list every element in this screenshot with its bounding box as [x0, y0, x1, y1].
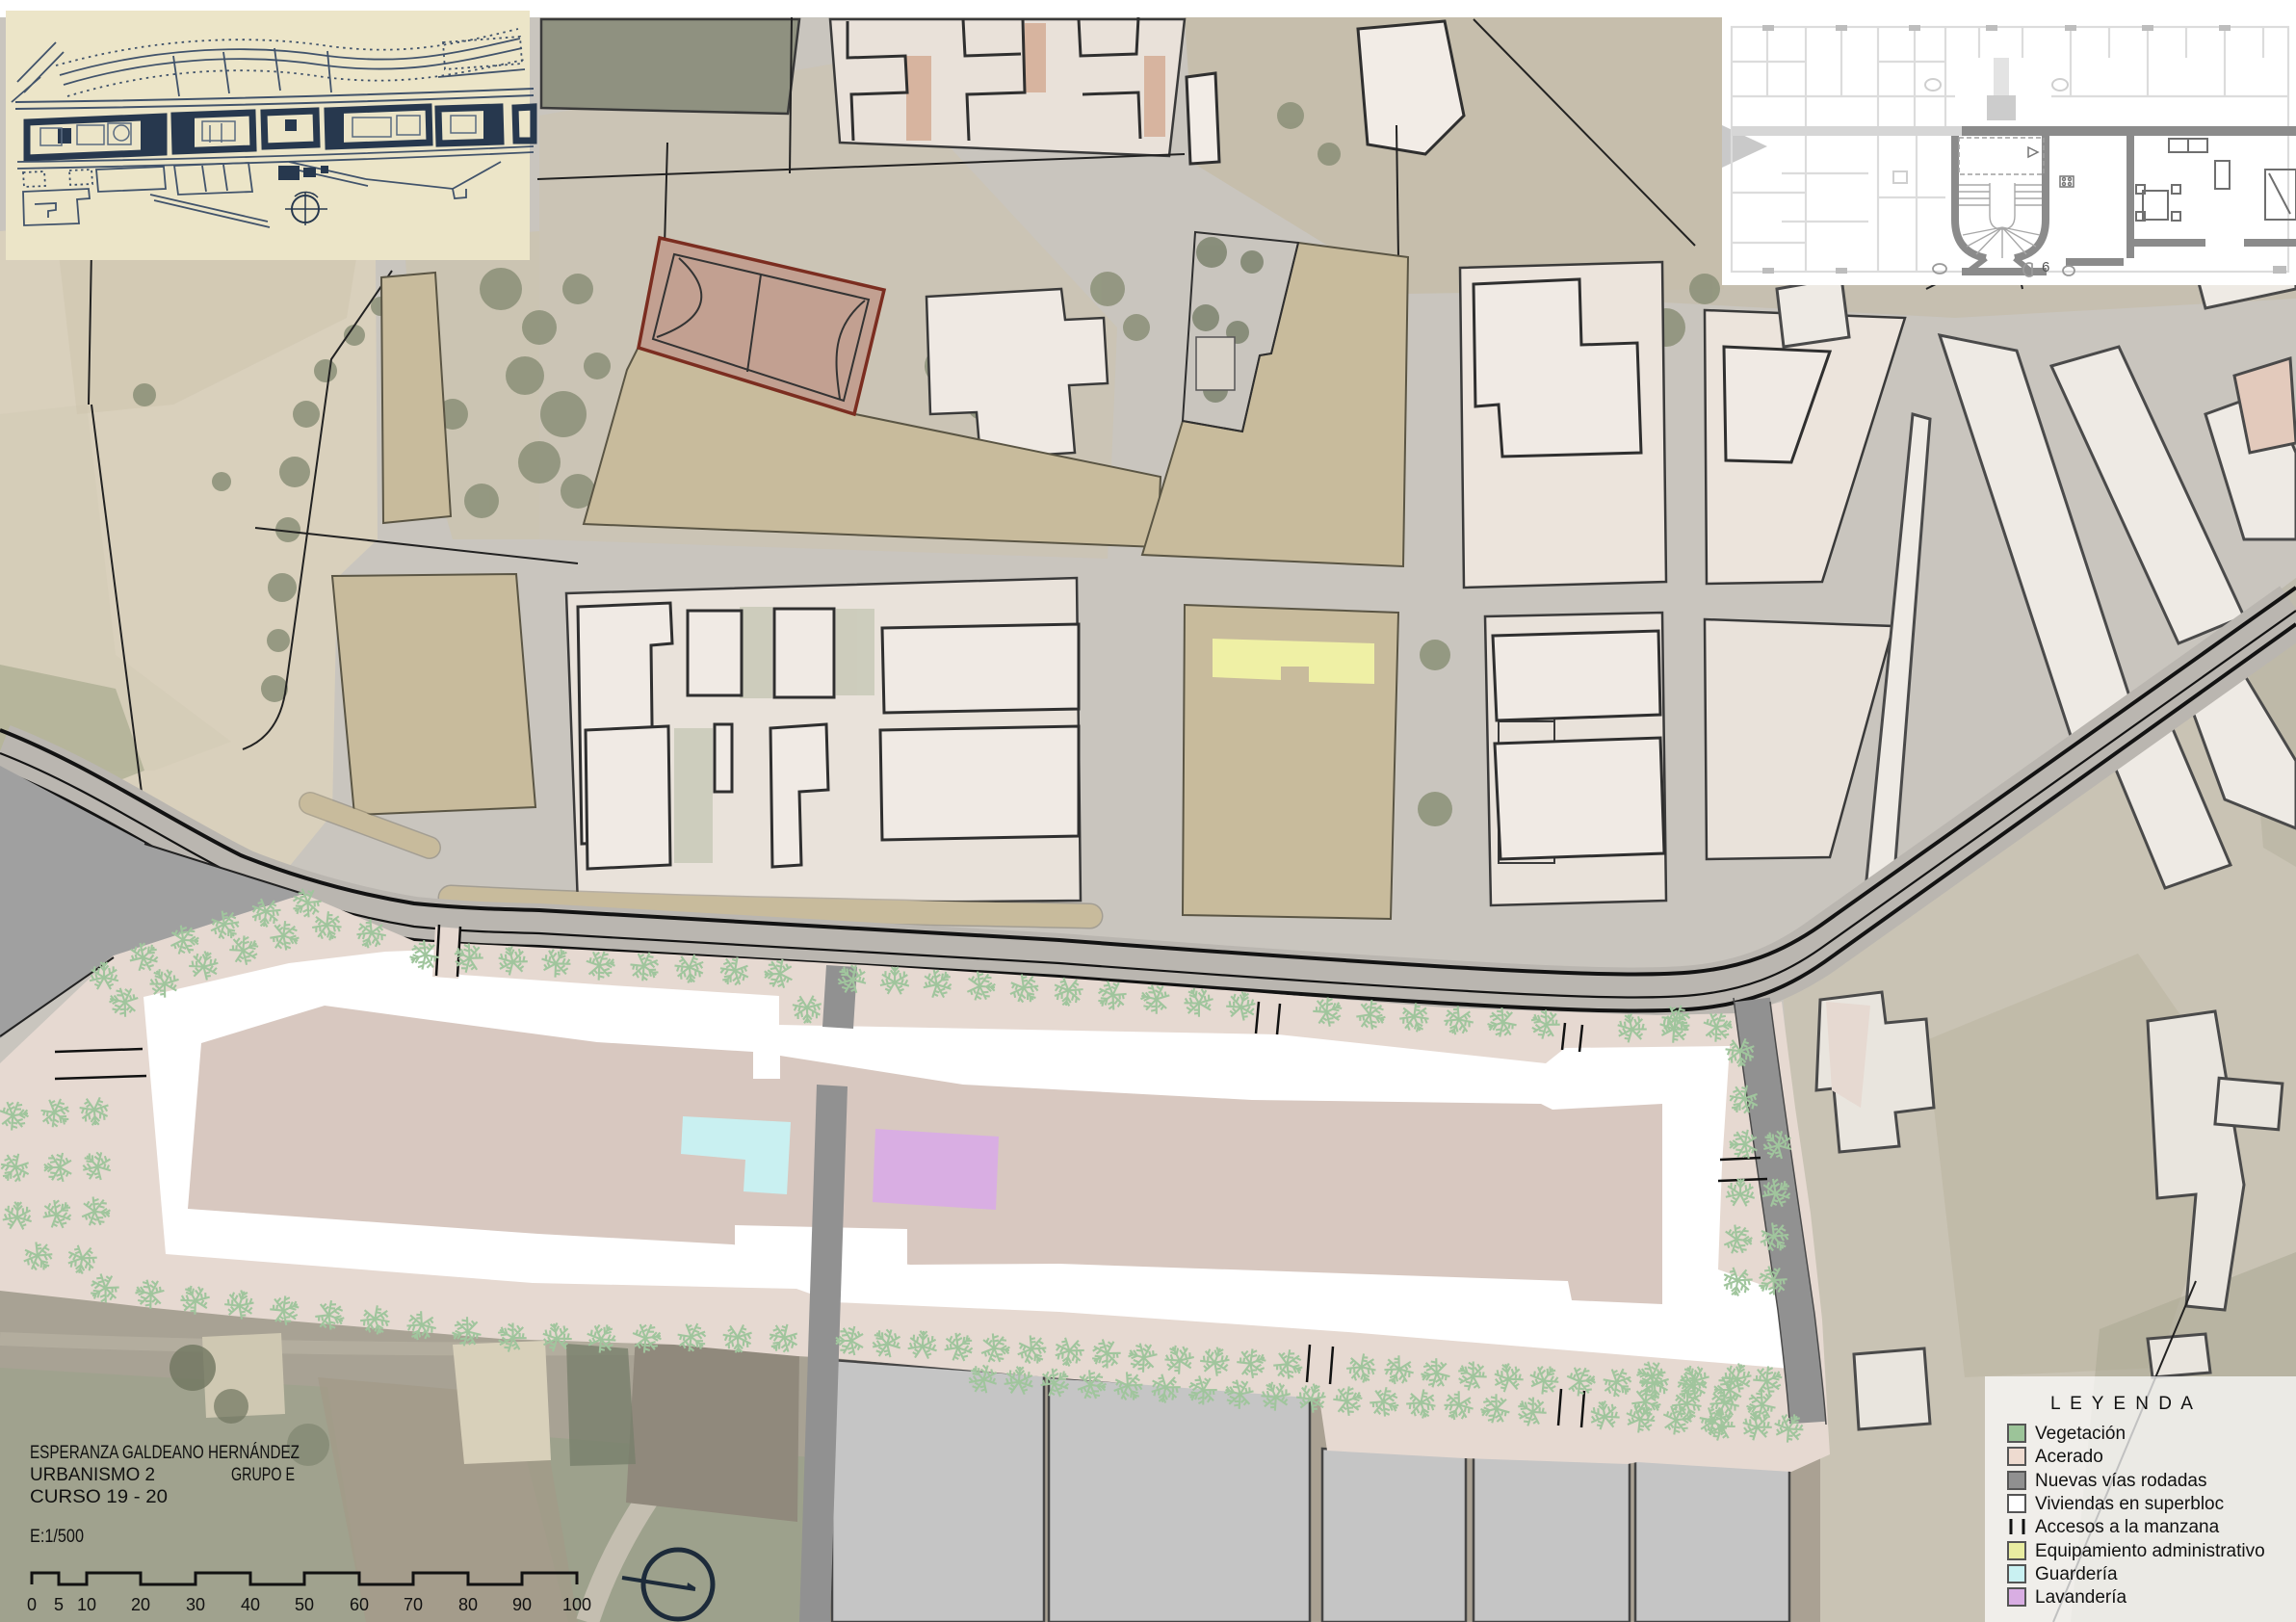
svg-text:L E Y E N D A: L E Y E N D A	[2050, 1394, 2195, 1414]
svg-text:Acerado: Acerado	[2035, 1447, 2103, 1467]
svg-text:20: 20	[131, 1595, 150, 1614]
svg-text:Lavandería: Lavandería	[2035, 1587, 2127, 1608]
svg-text:90: 90	[512, 1595, 532, 1614]
svg-text:40: 40	[241, 1595, 260, 1614]
svg-text:CURSO 19 - 20: CURSO 19 - 20	[30, 1487, 168, 1507]
svg-text:100: 100	[562, 1595, 591, 1614]
svg-text:5: 5	[54, 1595, 64, 1614]
svg-text:Accesos a la manzana: Accesos a la manzana	[2035, 1517, 2220, 1537]
svg-text:50: 50	[295, 1595, 314, 1614]
svg-text:0: 0	[27, 1595, 37, 1614]
svg-text:10: 10	[77, 1595, 96, 1614]
svg-text:Nuevas vías rodadas: Nuevas vías rodadas	[2035, 1471, 2207, 1491]
svg-text:60: 60	[350, 1595, 369, 1614]
svg-text:Guardería: Guardería	[2035, 1564, 2118, 1584]
svg-text:30: 30	[186, 1595, 205, 1614]
svg-text:E:1/500: E:1/500	[30, 1527, 84, 1547]
svg-text:Viviendas en superbloc: Viviendas en superbloc	[2035, 1494, 2224, 1514]
svg-text:ESPERANZA GALDEANO HERNÁNDEZ: ESPERANZA GALDEANO HERNÁNDEZ	[30, 1443, 300, 1463]
svg-text:URBANISMO 2: URBANISMO 2	[30, 1465, 155, 1485]
svg-text:GRUPO E: GRUPO E	[231, 1465, 295, 1485]
svg-text:Equipamiento administrativo: Equipamiento administrativo	[2035, 1541, 2265, 1561]
svg-text:80: 80	[458, 1595, 478, 1614]
svg-text:Vegetación: Vegetación	[2035, 1424, 2126, 1444]
svg-text:6: 6	[2042, 259, 2049, 275]
svg-text:70: 70	[404, 1595, 423, 1614]
